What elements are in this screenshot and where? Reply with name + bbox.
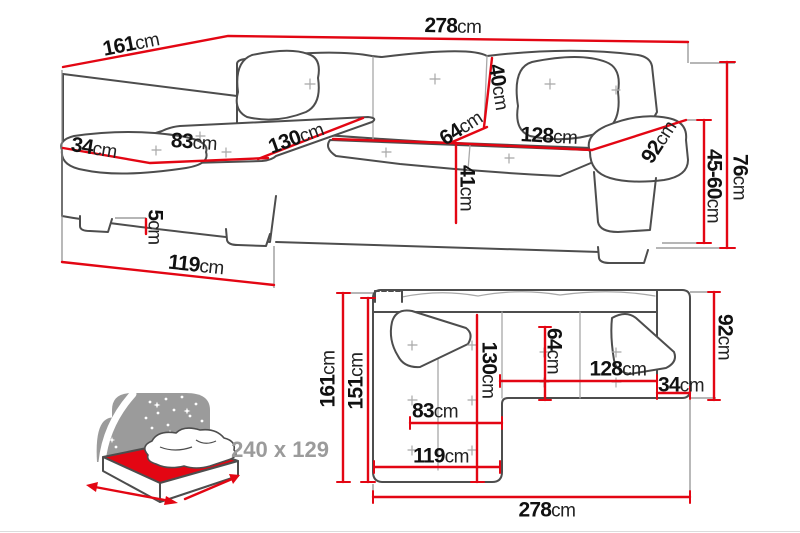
sofa-dimension-diagram: 161cm 278cm 34cm 83cm 130cm 40cm 64cm 12… (0, 0, 800, 533)
dim-label-top-chaise-seat-width: 83cm (412, 401, 458, 422)
dim-label-leg-height: 5cm (145, 209, 166, 244)
dim-label-top-total-width: 278cm (519, 500, 576, 521)
dim-label-chaise-front-length: 119cm (167, 252, 225, 279)
dim-label-top-armrest-width: 34cm (658, 375, 704, 396)
dim-label-chaise-seat-width: 83cm (170, 130, 217, 154)
dim-label-top-body-depth: 92cm (715, 314, 736, 360)
dim-label-top-chaise-front-length: 119cm (413, 446, 469, 467)
bed-night-sky-icon (86, 393, 240, 505)
bed-size-label: 240 x 129 (231, 437, 329, 463)
dim-label-top-seat-depth: 64cm (544, 328, 565, 374)
dim-label-top-inner-depth: 151cm (346, 353, 367, 410)
dim-label-seat-height: 41cm (457, 165, 478, 211)
diagram-canvas (0, 0, 800, 533)
dim-label-top-total-depth: 161cm (318, 351, 339, 408)
dim-label-top-seat-width: 128cm (590, 359, 647, 380)
dim-label-total-width: 278cm (424, 15, 481, 37)
dim-label-armrest-height-range: 45-60cm (704, 149, 725, 223)
dim-label-total-height: 76cm (730, 154, 751, 200)
dim-label-top-chaise-length: 130cm (479, 342, 500, 399)
dim-label-seat-width: 128cm (520, 124, 578, 148)
